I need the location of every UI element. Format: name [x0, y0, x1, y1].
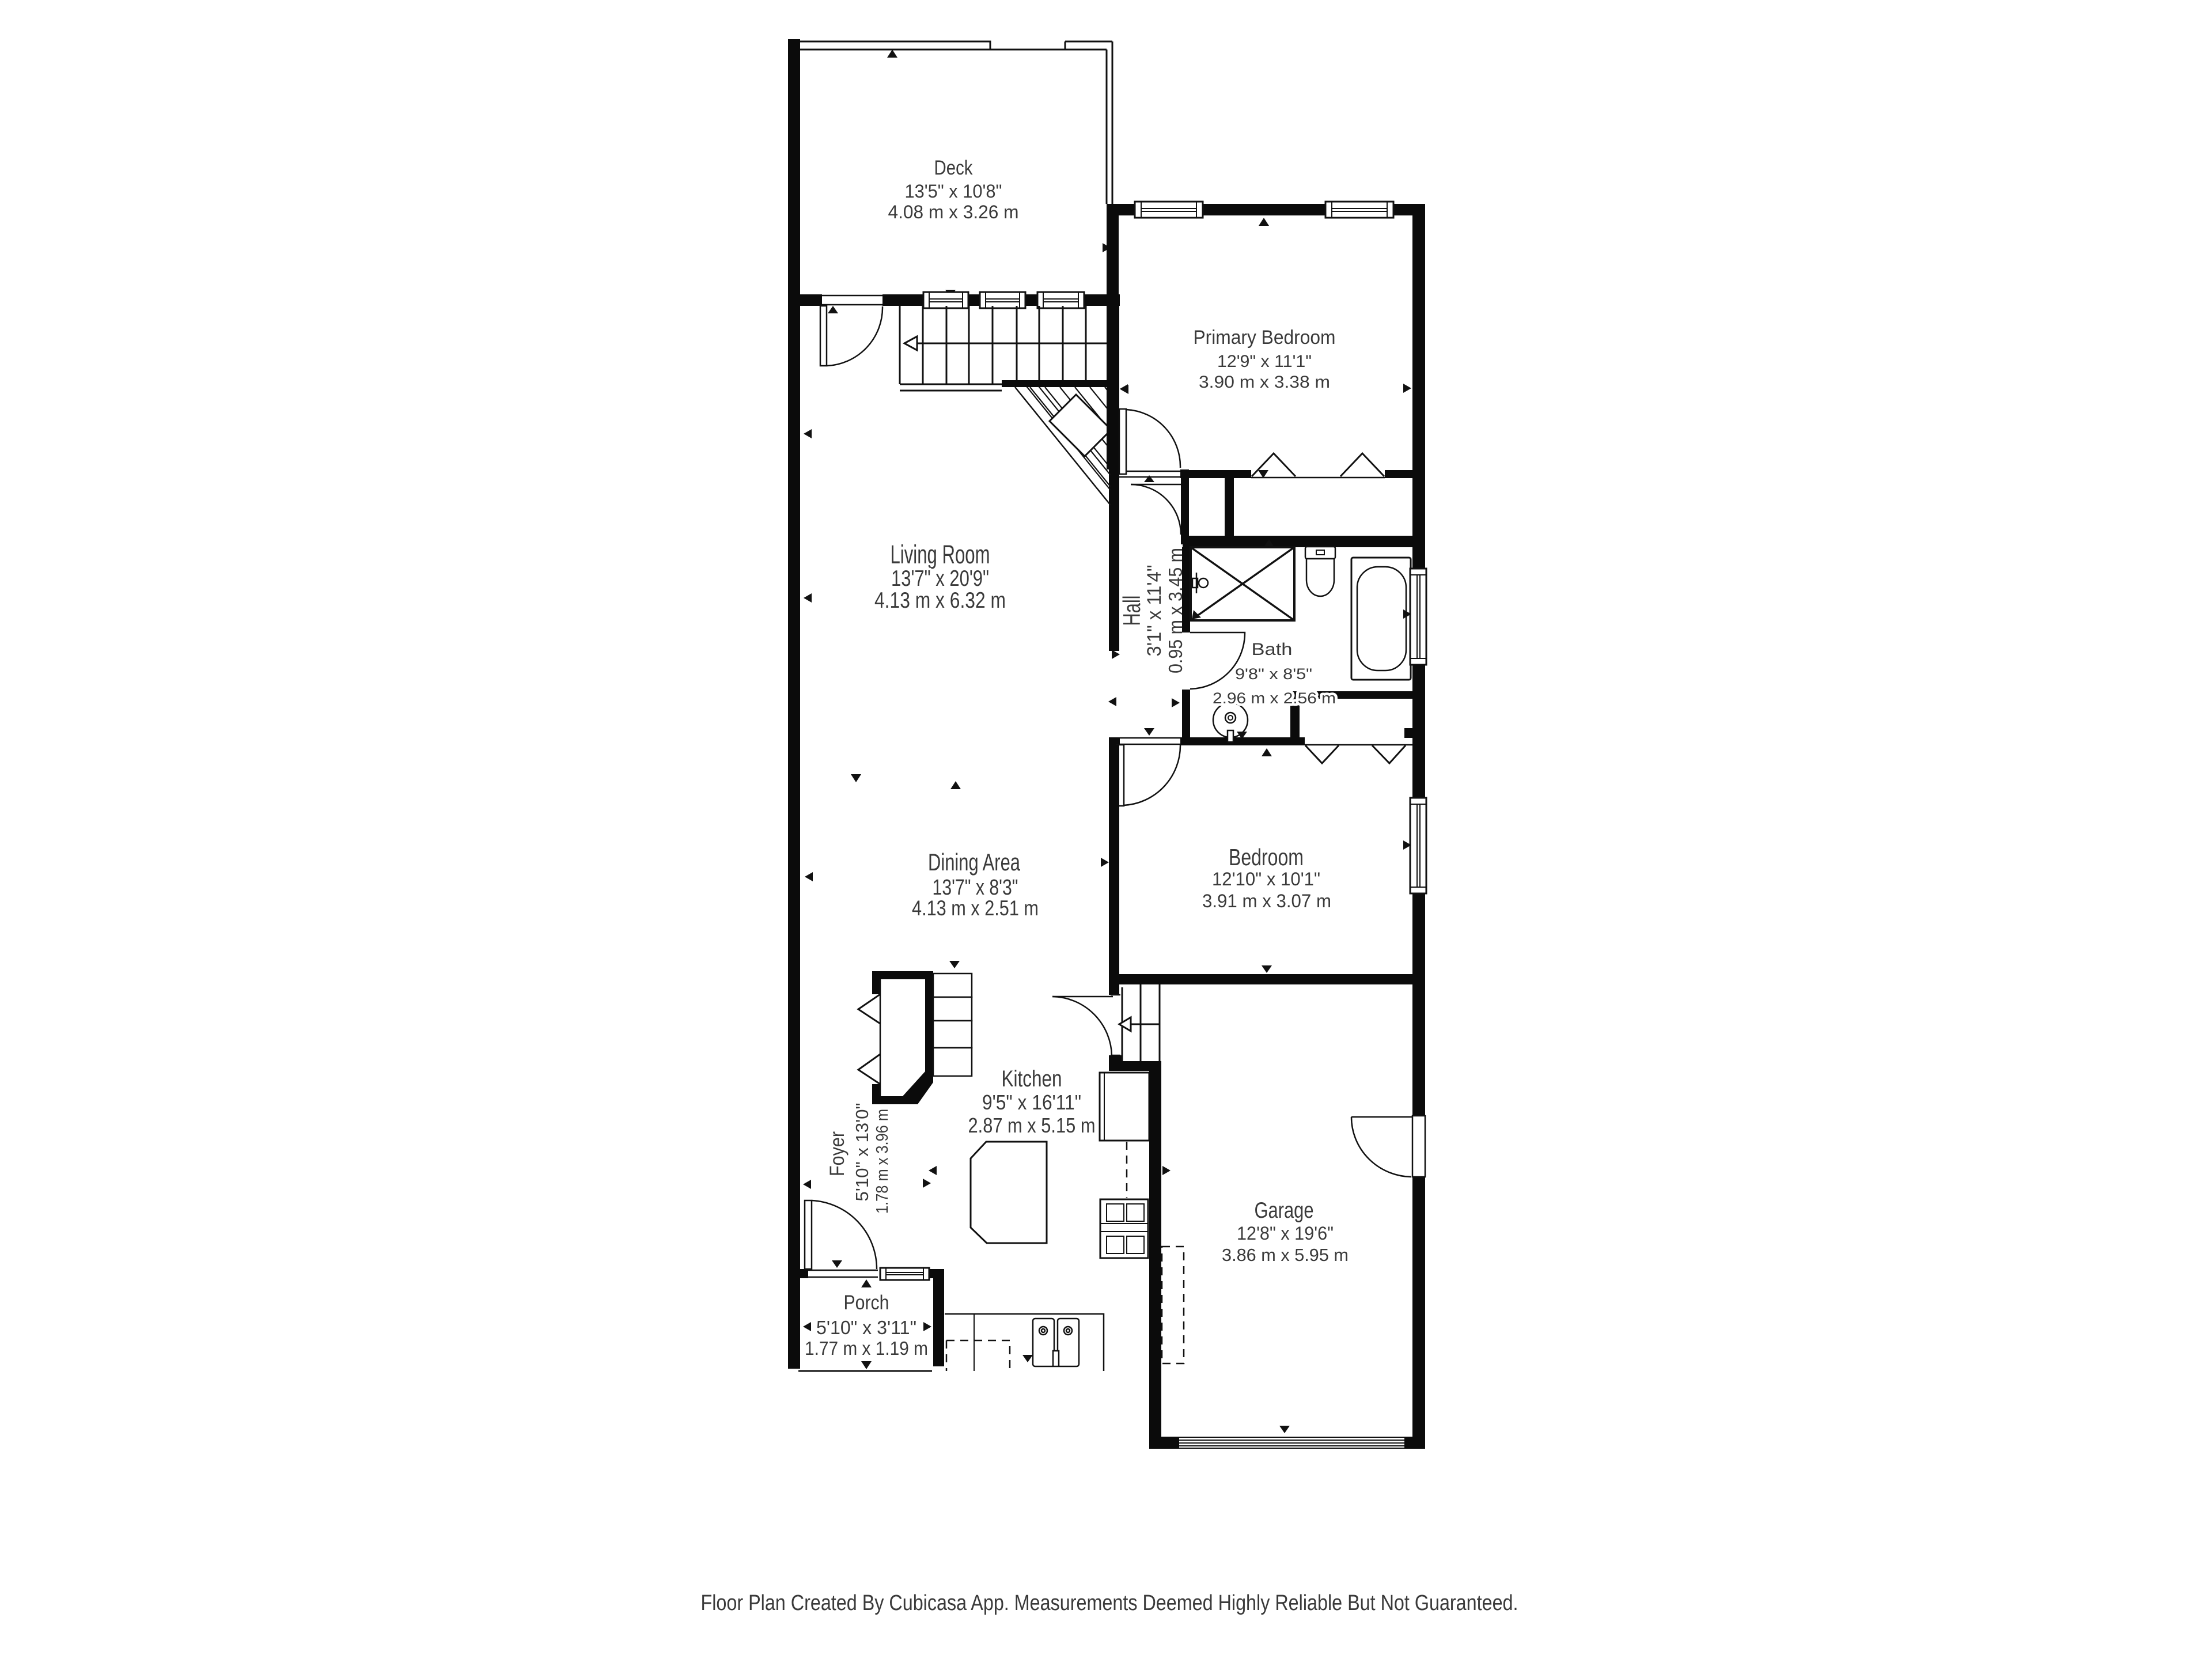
svg-text:Deck: Deck	[934, 157, 973, 179]
svg-text:4.13 m x 2.51 m: 4.13 m x 2.51 m	[912, 896, 1039, 920]
svg-text:Hall: Hall	[1118, 596, 1145, 626]
svg-text:5'10" x 3'11": 5'10" x 3'11"	[816, 1317, 916, 1338]
svg-text:Porch: Porch	[844, 1291, 889, 1314]
svg-text:3.91 m x 3.07 m: 3.91 m x 3.07 m	[1202, 891, 1331, 911]
svg-text:4.08 m x 3.26 m: 4.08 m x 3.26 m	[888, 202, 1019, 222]
svg-text:2.96 m x 2.56 m: 2.96 m x 2.56 m	[1213, 690, 1336, 707]
svg-text:Living Room: Living Room	[891, 540, 990, 569]
svg-text:12'8" x 19'6": 12'8" x 19'6"	[1237, 1223, 1334, 1244]
svg-text:9'5" x 16'11": 9'5" x 16'11"	[982, 1090, 1081, 1114]
svg-text:Primary Bedroom: Primary Bedroom	[1194, 327, 1336, 349]
svg-text:1.78 m x 3.96 m: 1.78 m x 3.96 m	[873, 1109, 892, 1214]
svg-text:9'8" x 8'5": 9'8" x 8'5"	[1235, 665, 1312, 683]
svg-text:4.13 m x 6.32 m: 4.13 m x 6.32 m	[874, 588, 1006, 613]
svg-text:5'10" x 13'0": 5'10" x 13'0"	[852, 1103, 872, 1202]
svg-text:12'9" x 11'1": 12'9" x 11'1"	[1217, 352, 1312, 371]
svg-text:3.90 m x 3.38 m: 3.90 m x 3.38 m	[1199, 373, 1330, 392]
svg-text:Garage: Garage	[1255, 1198, 1314, 1223]
svg-text:Bath: Bath	[1252, 640, 1293, 659]
svg-text:Floor Plan Created By Cubicasa: Floor Plan Created By Cubicasa App. Meas…	[701, 1591, 1518, 1615]
svg-text:Dining Area: Dining Area	[928, 849, 1020, 876]
svg-text:2.87 m x 5.15 m: 2.87 m x 5.15 m	[968, 1113, 1096, 1137]
svg-text:Bedroom: Bedroom	[1229, 844, 1304, 870]
svg-text:3.86 m x 5.95 m: 3.86 m x 5.95 m	[1222, 1245, 1349, 1265]
svg-text:13'5" x 10'8": 13'5" x 10'8"	[905, 181, 1002, 202]
svg-text:3'1" x 11'4": 3'1" x 11'4"	[1143, 565, 1165, 657]
svg-text:Foyer: Foyer	[826, 1131, 849, 1176]
svg-text:1.77 m x 1.19 m: 1.77 m x 1.19 m	[805, 1338, 928, 1359]
svg-text:12'10" x 10'1": 12'10" x 10'1"	[1212, 869, 1320, 889]
svg-text:13'7" x 20'9": 13'7" x 20'9"	[891, 566, 989, 591]
svg-text:Kitchen: Kitchen	[1002, 1066, 1062, 1092]
